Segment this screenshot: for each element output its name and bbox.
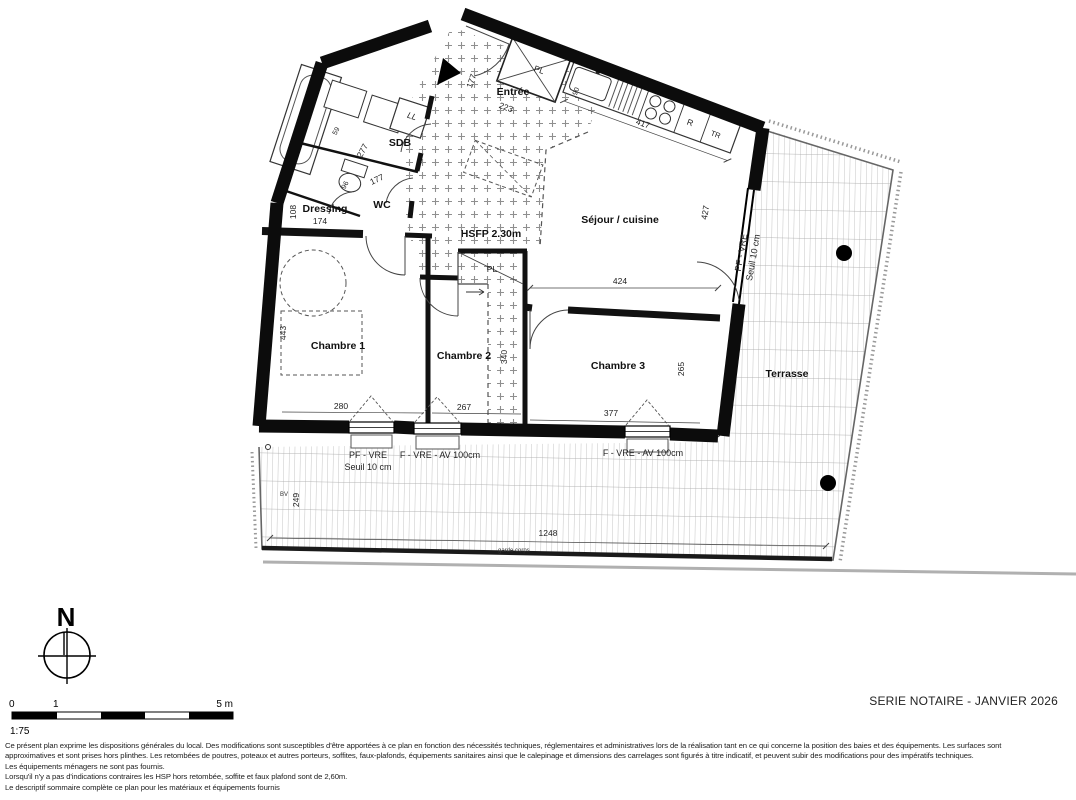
floor-plan-page: PL R TR 417 LL [0, 0, 1076, 800]
f-vre-av-label-2: F - VRE - AV 100cm [603, 448, 683, 458]
toilet [336, 159, 368, 195]
dim-177-wc: 177 [368, 172, 385, 187]
hsfp-label: HSFP 2.30m [461, 228, 522, 240]
dim-267: 267 [457, 402, 471, 412]
door-ch3 [530, 310, 568, 349]
footer-disclaimer: Ce présent plan exprime les dispositions… [5, 741, 1073, 793]
room-label-sejour: Séjour / cuisine [581, 214, 659, 226]
room-label-chambre2: Chambre 2 [437, 350, 491, 362]
pf-vre-label: PF - VRE [349, 450, 387, 460]
seuil-label: Seuil 10 cm [344, 462, 391, 472]
chambre1-furniture [280, 250, 362, 375]
hall-ch2-wall [420, 277, 458, 278]
dim-280: 280 [334, 401, 348, 411]
floor-plan-svg: PL R TR 417 LL [0, 0, 1076, 800]
scale-seg [101, 712, 145, 719]
series-label: SERIE NOTAIRE - JANVIER 2026 [869, 694, 1058, 708]
dim-424: 424 [613, 276, 627, 286]
room-label-chambre1: Chambre 1 [311, 340, 365, 352]
terrace-area [252, 121, 1076, 574]
north-label: N [57, 602, 76, 632]
sliding-arrow [466, 289, 484, 295]
ch1-top-wall [405, 235, 432, 236]
dim-340: 340 [499, 350, 509, 364]
disclaimer-line: approximatives et sont prises hors plint… [5, 751, 1073, 761]
lower-gray-line [263, 562, 1076, 574]
dim-277: 277 [355, 142, 371, 159]
scale-bar: 0 1 5 m 1:75 [9, 699, 233, 737]
dim-249: 249 [291, 493, 301, 507]
garde-corps-label: garde corps [498, 548, 530, 554]
wall-top-left [322, 26, 430, 63]
room-label-chambre3: Chambre 3 [591, 360, 645, 372]
wall-right-upper [754, 128, 763, 190]
door-ch1 [366, 236, 405, 275]
terrace-drain-dot [820, 475, 836, 491]
disclaimer-line: Lorsqu'il n'y a pas d'indications contra… [5, 772, 1073, 782]
pl-hall-label: PL [487, 264, 498, 274]
window-ch2 [414, 397, 461, 449]
f-vre-av-label-1: F - VRE - AV 100cm [400, 450, 480, 460]
terrace-drain-dot [836, 245, 852, 261]
disclaimer-line: Ce présent plan exprime les dispositions… [5, 741, 1073, 751]
compass-cross [38, 628, 96, 684]
scale-seg [12, 712, 57, 719]
room-label-dressing: Dressing [303, 203, 348, 215]
scale-seg [189, 712, 233, 719]
window-ch1 [349, 396, 394, 448]
dim-265: 265 [676, 362, 686, 376]
wall-left [259, 203, 277, 426]
room-label-sdb: SDB [389, 137, 412, 149]
room-label-terrasse: Terrasse [765, 368, 808, 380]
north-compass: N [38, 602, 96, 684]
rainwater-symbol [266, 445, 271, 450]
disclaimer-line: Le descriptif sommaire complète ce plan … [5, 783, 1073, 793]
dim-427: 427 [699, 204, 711, 220]
disclaimer-line: Les équipements ménagers ne sont pas fou… [5, 762, 1073, 772]
scale-tick-1: 1 [53, 699, 59, 710]
dashed-circle [280, 250, 346, 316]
dim-1248: 1248 [539, 528, 558, 538]
bv-label: BV [280, 492, 288, 498]
room-label-entree: Entrée [497, 86, 530, 98]
scale-ratio: 1:75 [10, 726, 30, 737]
dim-108: 108 [288, 205, 298, 219]
dim-174: 174 [313, 216, 327, 226]
scale-tick-0: 0 [9, 699, 15, 710]
dim-443: 443 [278, 326, 288, 340]
scale-tick-5: 5 m [216, 699, 233, 710]
window-ch3 [625, 400, 670, 452]
room-label-wc: WC [373, 199, 391, 211]
terrace-left-edge-hatch [252, 452, 256, 548]
dim-59: 59 [332, 126, 342, 136]
dim-377: 377 [604, 408, 618, 418]
